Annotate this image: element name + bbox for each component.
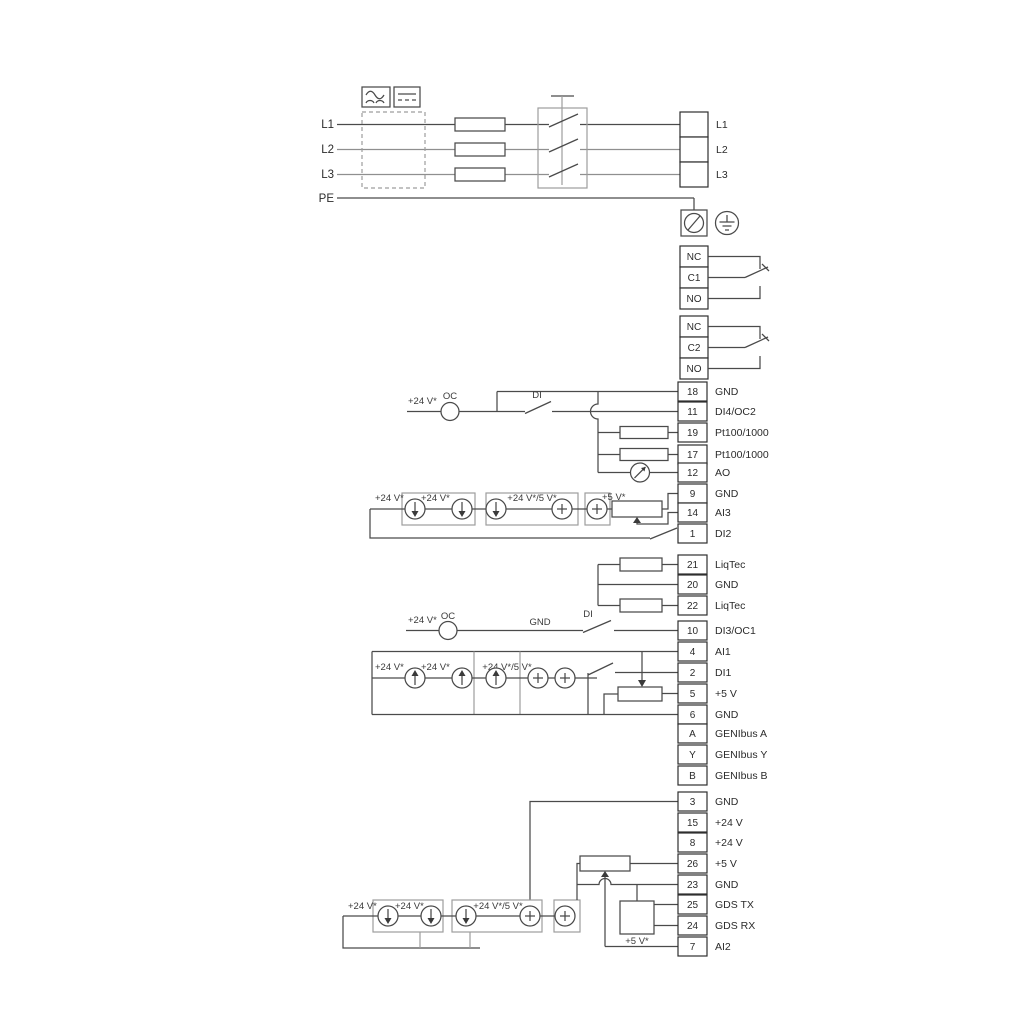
svg-text:3: 3	[690, 797, 696, 808]
terminal-label: +5 V	[715, 858, 737, 870]
svg-text:24: 24	[687, 921, 699, 932]
svg-text:25: 25	[687, 900, 699, 911]
input-label-l1: L1	[321, 119, 334, 131]
terminal-label: GND	[715, 879, 739, 891]
svg-text:22: 22	[687, 601, 699, 612]
ai3-source-group: +24 V* +24 V* +24 V*/5 V* +5 V*	[370, 492, 678, 539]
output-label-l1: L1	[716, 119, 728, 131]
io3-wiring: +24 V* +24 V* +24 V*/5 V*	[343, 802, 678, 949]
terminal-row: 24GDS RX	[678, 916, 755, 935]
svg-text:19: 19	[687, 428, 699, 439]
plus5-label: +5 V*	[625, 936, 649, 947]
terminal-label: GND	[715, 709, 739, 721]
pt100-resistor-1	[620, 427, 668, 439]
relay2-block: NC C2 NO	[680, 316, 769, 379]
svg-text:5: 5	[690, 689, 696, 700]
di-label: DI	[583, 609, 593, 620]
terminal-label: GENIbus Y	[715, 749, 767, 761]
terminal-label: GENIbus A	[715, 728, 767, 740]
terminal-row: 20GND	[678, 575, 739, 594]
potentiometer-ai3	[612, 501, 662, 517]
svg-text:26: 26	[687, 859, 699, 870]
plus24-label: +24 V*	[408, 396, 437, 407]
wiring-diagram: L1 L2 L3 PE	[0, 0, 1024, 1024]
svg-text:12: 12	[687, 468, 699, 479]
relay2-c2: C2	[688, 343, 701, 354]
svg-text:6: 6	[690, 710, 696, 721]
relay1-no: NO	[687, 294, 702, 305]
plus24-label: +24 V*	[395, 901, 424, 912]
liqtec-sensor-1	[620, 558, 662, 571]
current-source-icon	[405, 499, 425, 519]
current-source-icon	[486, 499, 506, 519]
dc-line-icon	[394, 87, 420, 107]
output-label-l3: L3	[716, 169, 728, 181]
terminal-row: 18GND	[678, 382, 739, 401]
genibus-terminal-block: AGENIbus A YGENIbus Y BGENIbus B	[678, 724, 768, 785]
terminal-label: +24 V	[715, 817, 743, 829]
current-source-icon	[421, 906, 441, 926]
svg-text:1: 1	[690, 529, 696, 540]
terminal-label: Pt100/1000	[715, 449, 769, 461]
terminal-row: 6GND	[678, 705, 739, 724]
current-source-icon	[452, 499, 472, 519]
terminal-row: 25GDS TX	[678, 895, 754, 914]
terminal-row: BGENIbus B	[678, 766, 768, 785]
oc-label: OC	[441, 611, 455, 622]
terminal-row: 4AI1	[678, 642, 731, 661]
svg-text:15: 15	[687, 818, 699, 829]
terminal-label: GND	[715, 488, 739, 500]
svg-text:23: 23	[687, 880, 699, 891]
io1-terminal-block: 18GND 11DI4/OC2 19Pt100/1000 17Pt100/100…	[678, 382, 769, 543]
terminal-row: 21LiqTec	[678, 555, 745, 574]
terminal-label: DI3/OC1	[715, 625, 756, 637]
voltage-source-icon	[528, 668, 548, 688]
terminal-label: GND	[715, 796, 739, 808]
power-section: L1 L2 L3 PE	[319, 87, 739, 236]
relay2-no: NO	[687, 364, 702, 375]
io2-terminal-block: 10DI3/OC1 4AI1 2DI1 5+5 V 6GND	[678, 621, 756, 724]
svg-text:Y: Y	[689, 750, 696, 761]
liqtec-sensor-2	[620, 599, 662, 612]
terminal-row: 8+24 V	[678, 833, 743, 852]
gds-sensor-box	[620, 901, 654, 934]
svg-text:4: 4	[690, 647, 696, 658]
terminal-row: AGENIbus A	[678, 724, 767, 743]
current-source-icon	[378, 906, 398, 926]
input-label-l3: L3	[321, 169, 334, 181]
terminal-row: 26+5 V	[678, 854, 737, 873]
terminal-label: GDS RX	[715, 920, 755, 932]
gnd-label: GND	[529, 617, 550, 628]
plus24-label: +24 V*	[375, 493, 404, 504]
power-terminal-block: L1 L2 L3	[680, 112, 728, 187]
pe-path	[337, 198, 739, 236]
svg-text:10: 10	[687, 626, 699, 637]
svg-text:21: 21	[687, 560, 699, 571]
oc-contact-circle	[439, 622, 457, 640]
io3-terminal-block: 3GND 15+24 V 8+24 V 26+5 V 23GND 25GDS T…	[678, 792, 755, 956]
relay1-contact	[708, 257, 769, 299]
voltage-source-icon	[555, 906, 575, 926]
terminal-label: DI1	[715, 667, 732, 679]
terminal-row: 14AI3	[678, 503, 731, 522]
relay1-nc: NC	[687, 252, 701, 263]
terminal-label: +5 V	[715, 688, 737, 700]
current-source-icon	[486, 668, 506, 688]
terminal-label: LiqTec	[715, 600, 745, 612]
wiring-diagram-page: L1 L2 L3 PE	[0, 0, 1024, 1024]
terminal-row: 11DI4/OC2	[678, 402, 756, 421]
terminal-label: AI2	[715, 941, 731, 953]
terminal-row: 2DI1	[678, 663, 732, 682]
terminal-row: 1DI2	[678, 524, 732, 543]
terminal-row: 12AO	[678, 463, 730, 482]
voltage-source-icon	[552, 499, 572, 519]
terminal-row: 15+24 V	[678, 813, 743, 832]
liqtec-wiring	[598, 558, 678, 612]
potentiometer-ai1	[618, 687, 662, 701]
plus24-5-label: +24 V*/5 V*	[507, 493, 557, 504]
plus24-label: +24 V*	[408, 615, 437, 626]
relay1-block: NC C1 NO	[680, 246, 769, 309]
terminal-label: DI2	[715, 528, 732, 540]
voltage-source-icon	[520, 906, 540, 926]
svg-text:7: 7	[690, 942, 696, 953]
terminal-label: AO	[715, 467, 730, 479]
oc-contact-circle	[441, 403, 459, 421]
plus24-5-label: +24 V*/5 V*	[473, 901, 523, 912]
svg-text:20: 20	[687, 580, 699, 591]
svg-text:11: 11	[687, 407, 698, 418]
terminal-row: 23GND	[678, 875, 739, 894]
liqtec-terminal-block: 21LiqTec 20GND 22LiqTec	[678, 555, 745, 615]
input-label-pe: PE	[319, 193, 335, 205]
svg-text:8: 8	[690, 838, 696, 849]
oc-label: OC	[443, 391, 457, 402]
terminal-label: GENIbus B	[715, 770, 768, 782]
input-label-l2: L2	[321, 144, 334, 156]
analog-output-meter-icon	[631, 463, 650, 482]
earth-ground-icon	[716, 212, 739, 235]
terminal-row: YGENIbus Y	[678, 745, 767, 764]
io1-wiring: +24 V* OC DI +24 V*	[370, 390, 678, 539]
terminal-label: LiqTec	[715, 559, 745, 571]
fuse-l3	[455, 168, 505, 181]
plus24-label: +24 V*	[421, 493, 450, 504]
plus24-label: +24 V*	[348, 901, 377, 912]
current-source-icon	[456, 906, 476, 926]
terminal-row: 9GND	[678, 484, 739, 503]
io2-wiring: +24 V* OC GND DI +24 V* +24 V* +24 V*/5 …	[372, 609, 678, 715]
terminal-label: GND	[715, 386, 739, 398]
terminal-label: GDS TX	[715, 899, 754, 911]
current-source-icon	[405, 668, 425, 688]
gds-sensor: +5 V*	[620, 885, 678, 948]
ac-wave-icon	[362, 87, 390, 107]
screw-terminal-icon	[681, 210, 707, 236]
svg-text:17: 17	[687, 450, 699, 461]
fuse-l2	[455, 143, 505, 156]
relay2-contact	[708, 327, 769, 369]
terminal-row: 5+5 V	[678, 684, 737, 703]
relay2-nc: NC	[687, 322, 701, 333]
potentiometer-ai2	[580, 856, 630, 871]
pt100-resistor-2	[620, 449, 668, 461]
terminal-row: 22LiqTec	[678, 596, 745, 615]
terminal-row: 19Pt100/1000	[678, 423, 769, 442]
output-label-l2: L2	[716, 144, 728, 156]
terminal-label: AI3	[715, 507, 731, 519]
svg-text:2: 2	[690, 668, 696, 679]
svg-text:14: 14	[687, 508, 699, 519]
terminal-label: AI1	[715, 646, 731, 658]
terminal-label: +24 V	[715, 837, 743, 849]
current-source-icon	[452, 668, 472, 688]
voltage-source-icon	[555, 668, 575, 688]
voltage-source-icon	[587, 499, 607, 519]
svg-text:9: 9	[690, 489, 696, 500]
svg-text:B: B	[689, 771, 696, 782]
fuse-l1	[455, 118, 505, 131]
relay1-c1: C1	[688, 273, 701, 284]
svg-text:18: 18	[687, 387, 699, 398]
di-label: DI	[532, 390, 542, 401]
ai2-source-group: +24 V* +24 V* +24 V*/5 V*	[343, 900, 580, 948]
plus24-label: +24 V*	[375, 662, 404, 673]
terminal-row: 10DI3/OC1	[678, 621, 756, 640]
svg-text:A: A	[689, 729, 696, 740]
terminal-label: GND	[715, 579, 739, 591]
terminal-row: 3GND	[678, 792, 739, 811]
terminal-label: Pt100/1000	[715, 427, 769, 439]
ai1-source-group: +24 V* +24 V* +24 V*/5 V*	[372, 652, 678, 715]
terminal-label: DI4/OC2	[715, 406, 756, 418]
terminal-row: 17Pt100/1000	[678, 445, 769, 464]
plus24-label: +24 V*	[421, 662, 450, 673]
terminal-row: 7AI2	[678, 937, 731, 956]
